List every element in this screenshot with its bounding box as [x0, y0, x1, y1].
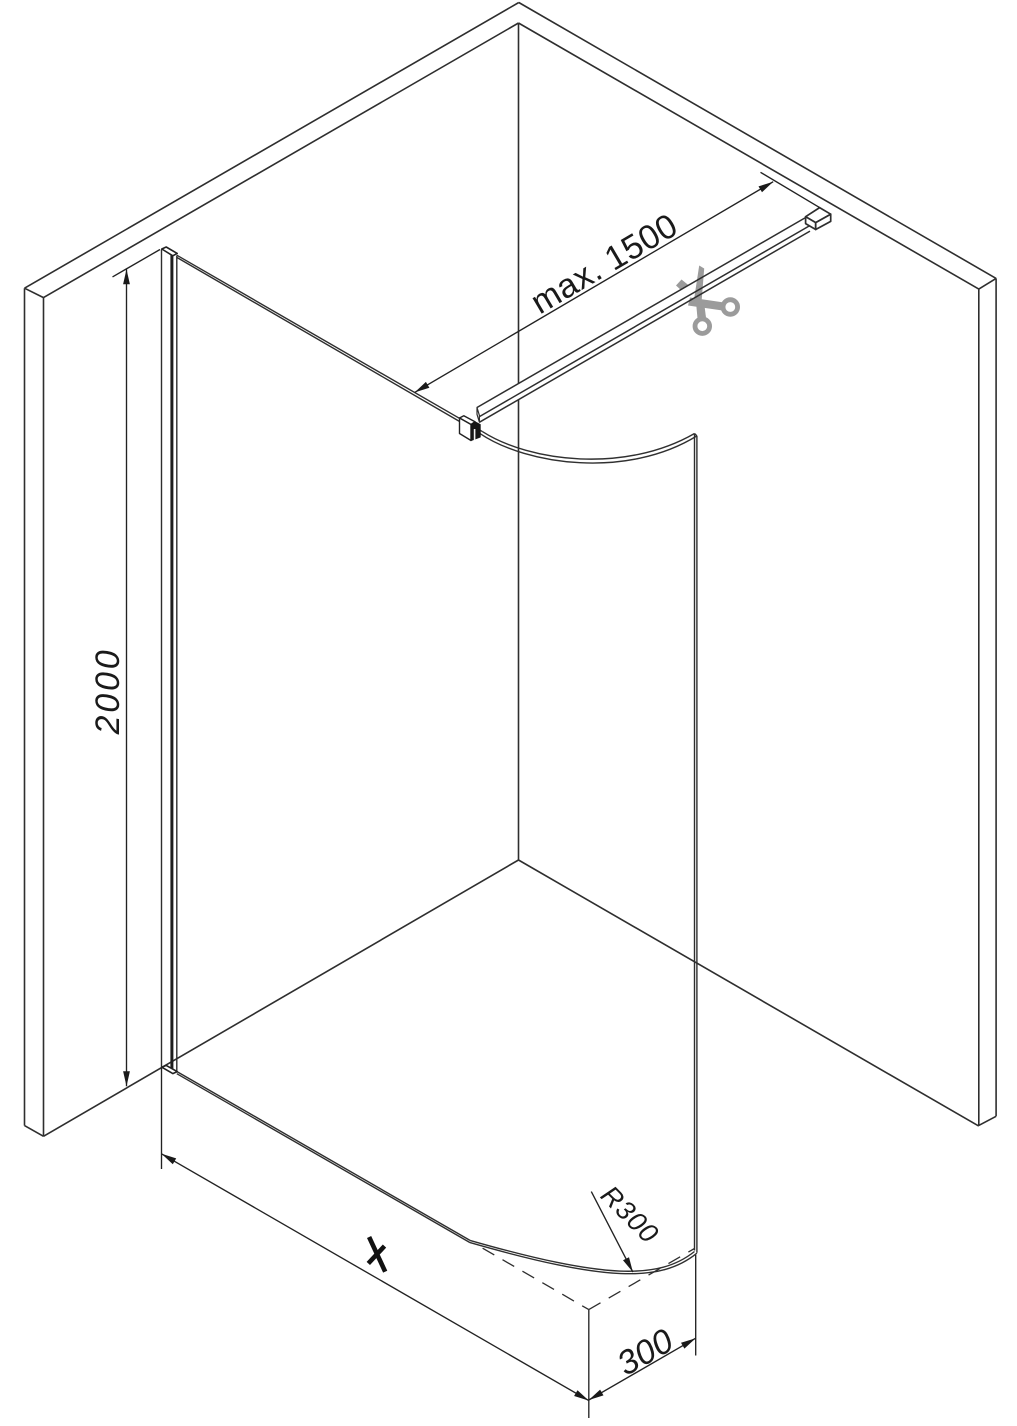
- svg-text:2000: 2000: [89, 648, 127, 736]
